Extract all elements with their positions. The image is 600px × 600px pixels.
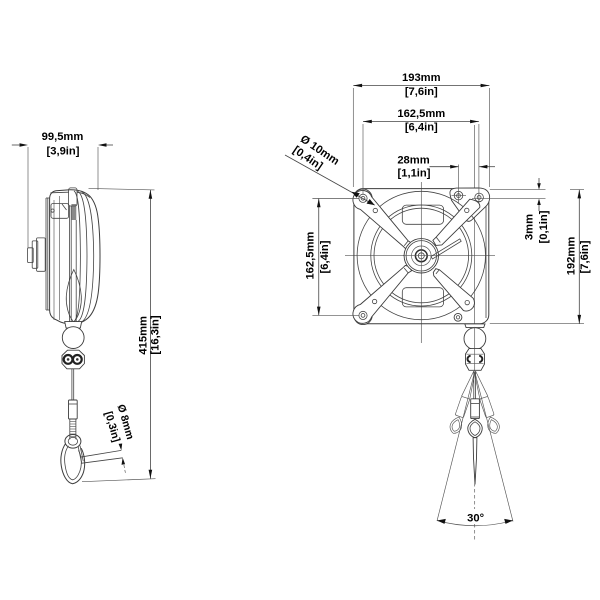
svg-text:[7,6in]: [7,6in] [405, 86, 438, 98]
svg-text:[1,1in]: [1,1in] [398, 168, 431, 180]
svg-text:193mm: 193mm [402, 72, 441, 84]
svg-text:162,5mm: 162,5mm [305, 232, 317, 280]
svg-text:99,5mm: 99,5mm [42, 131, 84, 143]
svg-text:415mm: 415mm [138, 316, 150, 355]
svg-text:[0,1in]: [0,1in] [538, 210, 550, 243]
svg-text:28mm: 28mm [397, 155, 429, 167]
svg-text:[6,4in]: [6,4in] [405, 122, 438, 134]
svg-text:[6,4in]: [6,4in] [319, 240, 331, 273]
svg-text:[7,6in]: [7,6in] [579, 240, 591, 273]
svg-text:162,5mm: 162,5mm [397, 108, 445, 120]
svg-text:30°: 30° [467, 513, 484, 525]
svg-text:[16,3in]: [16,3in] [150, 315, 162, 354]
svg-text:3mm: 3mm [524, 214, 536, 240]
svg-text:[3,9in]: [3,9in] [47, 146, 80, 158]
svg-text:192mm: 192mm [565, 237, 577, 276]
